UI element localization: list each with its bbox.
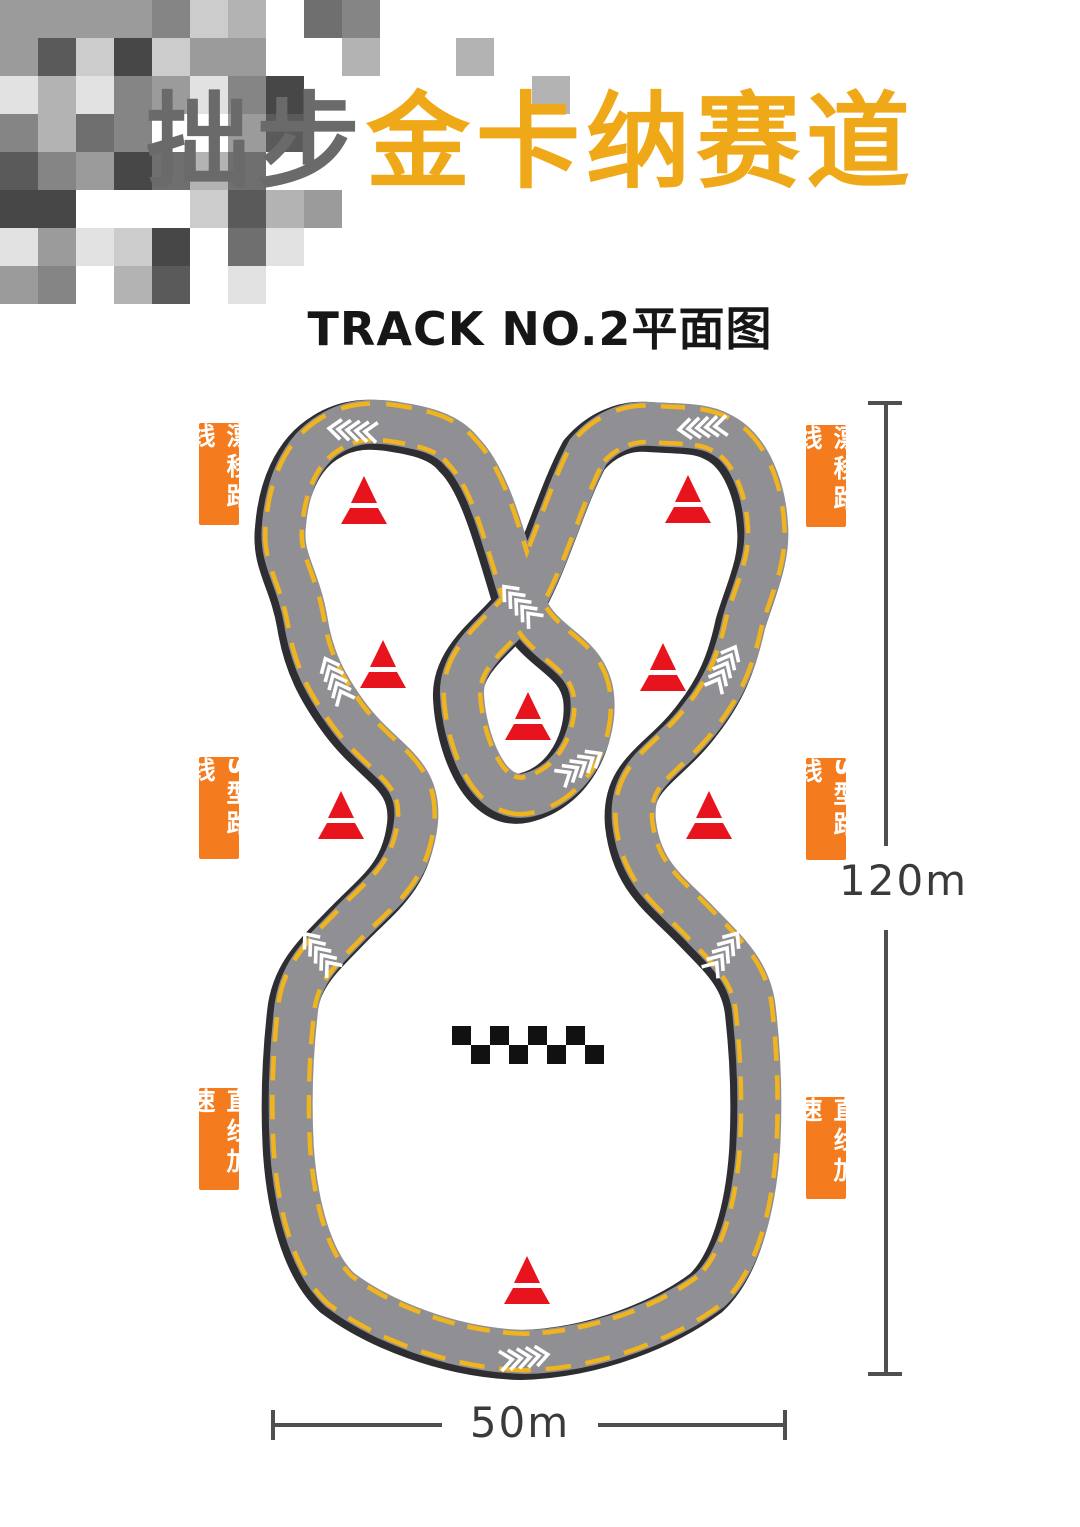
dim-width-tick-right [783,1410,787,1440]
checker-square [566,1026,585,1045]
traffic-cone-icon [505,692,551,740]
start-finish-checker [452,1026,604,1064]
subtitle: TRACK NO.2平面图 [0,293,1080,359]
label-drift-right: 漂移路线 [806,425,846,527]
traffic-cone-icon [318,791,364,839]
checker-square [585,1045,604,1064]
traffic-cone-icon [360,640,406,688]
checker-square [490,1026,509,1045]
gymkhana-track-poster: 拙步金卡纳赛道 TRACK NO.2平面图 漂移路线 漂移路线 S型路线 S型路… [0,0,1080,1527]
traffic-cone-icon [341,476,387,524]
dim-width-line-left [273,1423,442,1427]
checker-square [509,1045,528,1064]
track-road [279,422,766,1355]
title-brand: 拙步 [146,81,366,203]
traffic-cone-icon [504,1256,550,1304]
label-s-curve-right: S型路线 [806,758,846,860]
checker-square [471,1045,490,1064]
traffic-cone-icon [640,643,686,691]
traffic-cone-icon [686,791,732,839]
dim-height-line-upper [884,403,888,846]
title-track-name: 金卡纳赛道 [366,81,916,203]
checker-square [528,1026,547,1045]
label-s-curve-left: S型路线 [199,757,239,859]
dim-height-tick-bottom [868,1372,902,1376]
dim-width-label: 50m [442,1398,598,1447]
dim-height-label: 120m [839,856,951,905]
checker-square [547,1045,566,1064]
label-straight-left: 直线加速 [199,1088,239,1190]
dim-height-line-lower [884,930,888,1374]
page-title: 拙步金卡纳赛道 [146,88,916,197]
dim-width-line-right [598,1423,785,1427]
label-straight-right: 直线加速 [806,1097,846,1199]
label-drift-left: 漂移路线 [199,423,239,525]
traffic-cone-icon [665,475,711,523]
checker-square [452,1026,471,1045]
track-map [0,0,1080,1527]
